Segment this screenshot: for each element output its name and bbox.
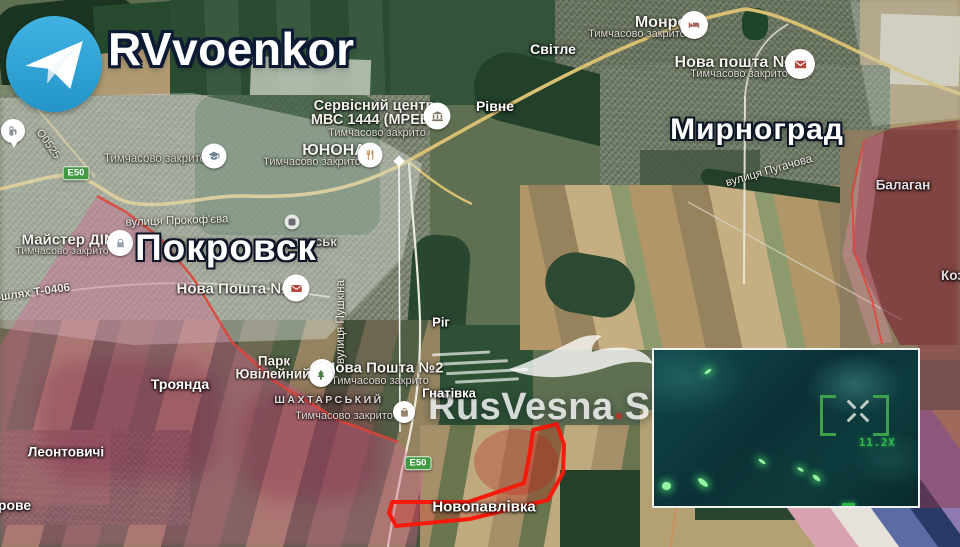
telegram-plane-icon (6, 16, 102, 112)
label-leontovychi: Леонтовичі (28, 445, 104, 460)
road-shield-e50: Е50 (405, 456, 432, 470)
tree-icon (309, 363, 333, 387)
pin-tail (10, 141, 18, 148)
target-bracket-left (820, 395, 836, 436)
thermal-hotspot (662, 482, 671, 490)
bank-icon (424, 103, 451, 130)
thermal-inset: 11.2X (652, 348, 920, 508)
measure-pin-diamond (393, 155, 404, 166)
poi-status: Тимчасово закрито (15, 245, 108, 257)
street-pushkina: вулиця Пушкіна (335, 280, 347, 364)
label-shakhtarskyi: ШАХТАРСЬКИЙ (274, 394, 383, 406)
channel-name: RVvoenkor (108, 22, 355, 76)
mail-icon (283, 275, 310, 302)
poi-status: Тимчасово закрито (263, 156, 361, 168)
label-novopavlivka: Новопавлівка (432, 499, 535, 516)
lock-icon (107, 230, 133, 256)
gas-pump-icon (1, 119, 25, 143)
poi-status: Тимчасово закрито (588, 28, 686, 40)
thermal-hotspot (812, 474, 821, 483)
target-bracket-right (873, 395, 889, 436)
label-rih: Ріг (432, 315, 450, 330)
swallow-icon (500, 333, 660, 388)
annotation-myrnohrad: Мирноград (670, 113, 844, 147)
label-svitle: Світле (530, 41, 576, 57)
thermal-hotspot (704, 368, 712, 375)
poi-status: Тимчасово закрито (331, 375, 429, 387)
crosshair-x-icon (845, 399, 871, 425)
store-icon (393, 401, 415, 423)
restaurant-icon (358, 143, 383, 168)
poi-name: Нова Пошта №2 (325, 360, 444, 377)
poi-name: Нова Пошта №3 (177, 281, 296, 298)
poi-name: Ювілейний (236, 367, 311, 382)
label-koz: Коз (941, 268, 960, 283)
label-balahan: Балаган (876, 178, 931, 193)
poi-status: Тимчасово закрито (295, 410, 393, 422)
label-rivne: Рівне (476, 98, 514, 114)
bed-icon (680, 11, 708, 39)
inset-zoom-label: 11.2X (859, 437, 896, 449)
thermal-hotspot (697, 477, 709, 489)
watermark-dot: . (614, 386, 625, 428)
poi-name: МВС 1444 (МРЕВ) (311, 112, 435, 128)
thermal-hotspot (797, 466, 805, 472)
thermal-hotspot (758, 458, 766, 465)
school-icon (202, 144, 227, 169)
thermal-hotspot (842, 503, 855, 507)
poi-status: Тимчасово закрито (104, 153, 206, 165)
poi-status: Тимчасово закрито (328, 127, 426, 139)
label-hnativka: Гнатівка (422, 386, 476, 401)
annotation-pokrovsk: Покровск (135, 227, 317, 269)
map-screenshot: RusVesna.SU Світле Рівне Троянда Ріг Гна… (0, 0, 960, 547)
poi-status: Тимчасово закрито (690, 68, 788, 80)
label-irove: ірове (0, 497, 31, 513)
road-shield-e50: Е50 (63, 166, 90, 180)
label-troianda: Троянда (151, 376, 209, 392)
mail-icon (785, 49, 815, 79)
telegram-logo (6, 16, 102, 112)
